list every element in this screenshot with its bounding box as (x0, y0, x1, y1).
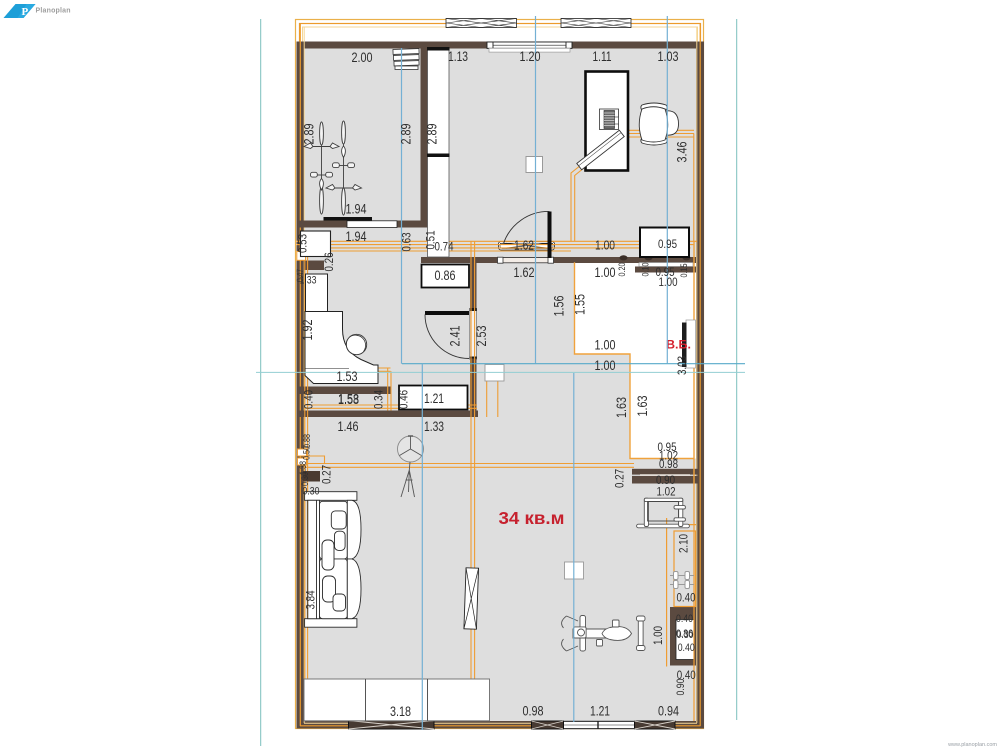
svg-text:0.47: 0.47 (295, 269, 305, 282)
svg-text:1.00: 1.00 (595, 238, 615, 253)
svg-text:2.53: 2.53 (474, 326, 489, 347)
svg-text:0.20: 0.20 (617, 263, 627, 277)
svg-text:0.98: 0.98 (659, 457, 678, 471)
svg-text:0.27: 0.27 (320, 465, 334, 484)
svg-text:1.94: 1.94 (346, 202, 367, 217)
svg-text:0.53: 0.53 (296, 234, 310, 253)
svg-text:2.89: 2.89 (425, 124, 440, 145)
svg-text:1.53: 1.53 (338, 392, 359, 407)
svg-text:0.27: 0.27 (613, 469, 627, 488)
svg-text:0.88: 0.88 (302, 434, 312, 448)
svg-text:2.10: 2.10 (677, 534, 691, 553)
svg-text:0.30: 0.30 (303, 486, 320, 498)
svg-text:1.92: 1.92 (300, 320, 315, 341)
svg-text:0.40: 0.40 (302, 390, 316, 409)
svg-text:3.03: 3.03 (675, 356, 689, 375)
svg-text:1.11: 1.11 (593, 49, 612, 64)
svg-text:1.46: 1.46 (338, 419, 359, 434)
svg-text:1.00: 1.00 (595, 338, 616, 353)
svg-text:1.21: 1.21 (590, 704, 610, 719)
svg-text:0.10: 0.10 (641, 263, 651, 277)
svg-text:1.62: 1.62 (514, 265, 535, 280)
svg-text:1.33: 1.33 (424, 419, 444, 434)
svg-text:0.86: 0.86 (676, 628, 693, 640)
svg-text:1.56: 1.56 (552, 296, 567, 317)
svg-text:0.34: 0.34 (372, 390, 386, 409)
svg-text:3.84: 3.84 (304, 590, 318, 609)
svg-text:1.00: 1.00 (595, 358, 616, 373)
svg-text:1.03: 1.03 (658, 49, 679, 64)
svg-text:0.15: 0.15 (679, 264, 689, 278)
svg-text:0.40: 0.40 (677, 591, 696, 605)
svg-text:1.63: 1.63 (635, 396, 650, 417)
svg-text:0.46: 0.46 (397, 390, 411, 409)
svg-text:В.Б.: В.Б. (666, 338, 691, 352)
svg-text:1.00: 1.00 (659, 275, 678, 289)
svg-text:2.89: 2.89 (302, 124, 317, 145)
svg-text:2.89: 2.89 (399, 124, 414, 145)
svg-text:3.18: 3.18 (390, 704, 411, 719)
svg-text:34 кв.м: 34 кв.м (499, 508, 565, 528)
svg-text:0.26: 0.26 (322, 252, 336, 271)
svg-text:1.55: 1.55 (573, 294, 588, 315)
svg-text:0.95: 0.95 (658, 237, 677, 251)
svg-text:1.94: 1.94 (346, 229, 367, 244)
svg-text:1.00: 1.00 (595, 265, 616, 280)
svg-text:0.40: 0.40 (678, 642, 695, 654)
svg-text:0.90: 0.90 (675, 679, 687, 696)
svg-text:1.00: 1.00 (651, 626, 665, 645)
svg-text:3.46: 3.46 (675, 142, 690, 163)
svg-text:1.53: 1.53 (337, 369, 358, 384)
svg-text:1.21: 1.21 (424, 391, 444, 406)
svg-text:www.planoplan.com: www.planoplan.com (947, 742, 997, 748)
svg-text:0.86: 0.86 (435, 268, 456, 283)
svg-text:0.98: 0.98 (523, 704, 544, 719)
svg-text:0.63: 0.63 (400, 232, 414, 251)
svg-text:P: P (22, 6, 29, 18)
svg-text:1.20: 1.20 (520, 49, 541, 64)
svg-text:1.62: 1.62 (514, 238, 534, 253)
svg-text:1.13: 1.13 (448, 49, 468, 64)
svg-text:0.40: 0.40 (676, 613, 693, 625)
svg-text:0.94: 0.94 (658, 704, 679, 719)
svg-text:1.63: 1.63 (614, 397, 629, 418)
svg-text:0.51: 0.51 (424, 230, 438, 249)
svg-text:1.02: 1.02 (657, 485, 676, 499)
svg-text:1.38: 1.38 (298, 461, 308, 475)
svg-text:Planoplan: Planoplan (36, 8, 71, 15)
svg-text:2.00: 2.00 (352, 50, 373, 65)
svg-text:2.41: 2.41 (448, 326, 463, 347)
